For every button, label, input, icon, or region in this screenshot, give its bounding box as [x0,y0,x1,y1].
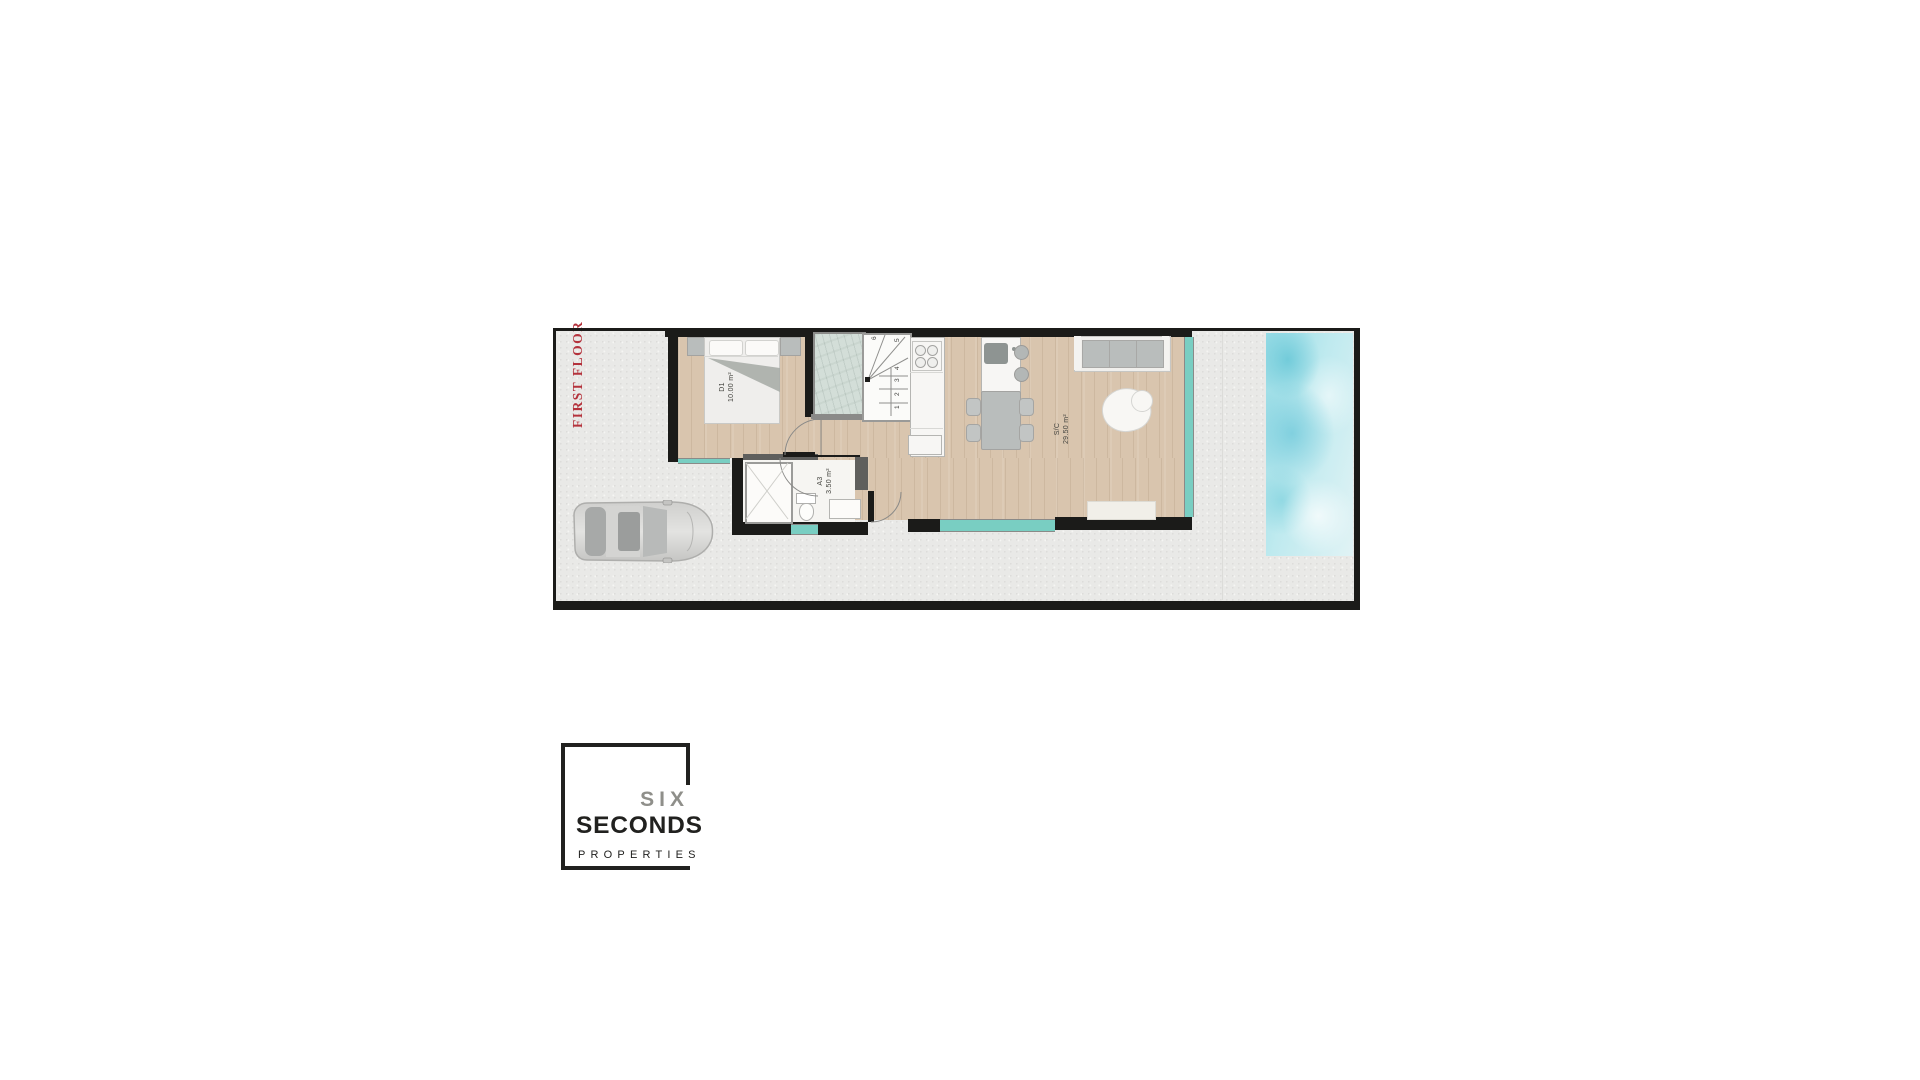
page: 1 2 3 4 5 6 [0,0,1920,1080]
room-label-living-kitchen: S/C 29.50 m² [1054,412,1071,446]
bathroom-door-arc [780,458,818,496]
car [571,500,716,563]
step-number: 3 [894,378,901,382]
site-border-top [553,328,1360,331]
car-sunroof [618,512,640,551]
car-mirror [663,500,672,505]
room-area: 29.50 m² [1063,412,1072,446]
shower-cross [746,463,788,519]
logo-frame-top [561,743,690,747]
room-code: S/C [1054,412,1063,446]
room-area: 3.50 m² [826,464,835,498]
site-border-bottom [553,601,1360,610]
plan-linework: 1 2 3 4 5 6 [553,328,1360,610]
step-number: 6 [871,336,878,340]
step-number: 2 [894,392,901,396]
step-number: 4 [894,366,901,370]
six-seconds-logo: SIX SECONDS PROPERTIES [561,743,690,870]
car-mirror [663,558,672,563]
room-label-bathroom: A3 3.50 m² [817,464,834,498]
car-rear-window [585,507,606,556]
logo-frame-left [561,743,565,870]
step-number: 1 [894,405,901,409]
step-number: 5 [894,338,901,342]
logo-properties-text: PROPERTIES [578,849,701,861]
site-border-left [553,328,556,610]
car-windshield [643,506,667,557]
room-code: D1 [719,370,728,404]
logo-frame-bottom [561,866,690,870]
room-label-bedroom: D1 10.00 m² [719,370,736,404]
stair-treads [868,335,908,416]
room-code: A3 [817,464,826,498]
logo-seconds-text: SECONDS [576,812,703,840]
first-floor-label: FIRST FLOOR [569,338,587,428]
logo-frame-right [686,743,690,785]
room-area: 10.00 m² [728,370,737,404]
logo-six-text: SIX [640,788,689,812]
site-plan: 1 2 3 4 5 6 [553,328,1360,610]
stair-newel [865,377,870,382]
door-swing-arcs [780,419,901,522]
entry-door-arc [871,492,901,522]
site-border-right [1354,328,1360,610]
bedroom-door-arc [785,419,821,455]
